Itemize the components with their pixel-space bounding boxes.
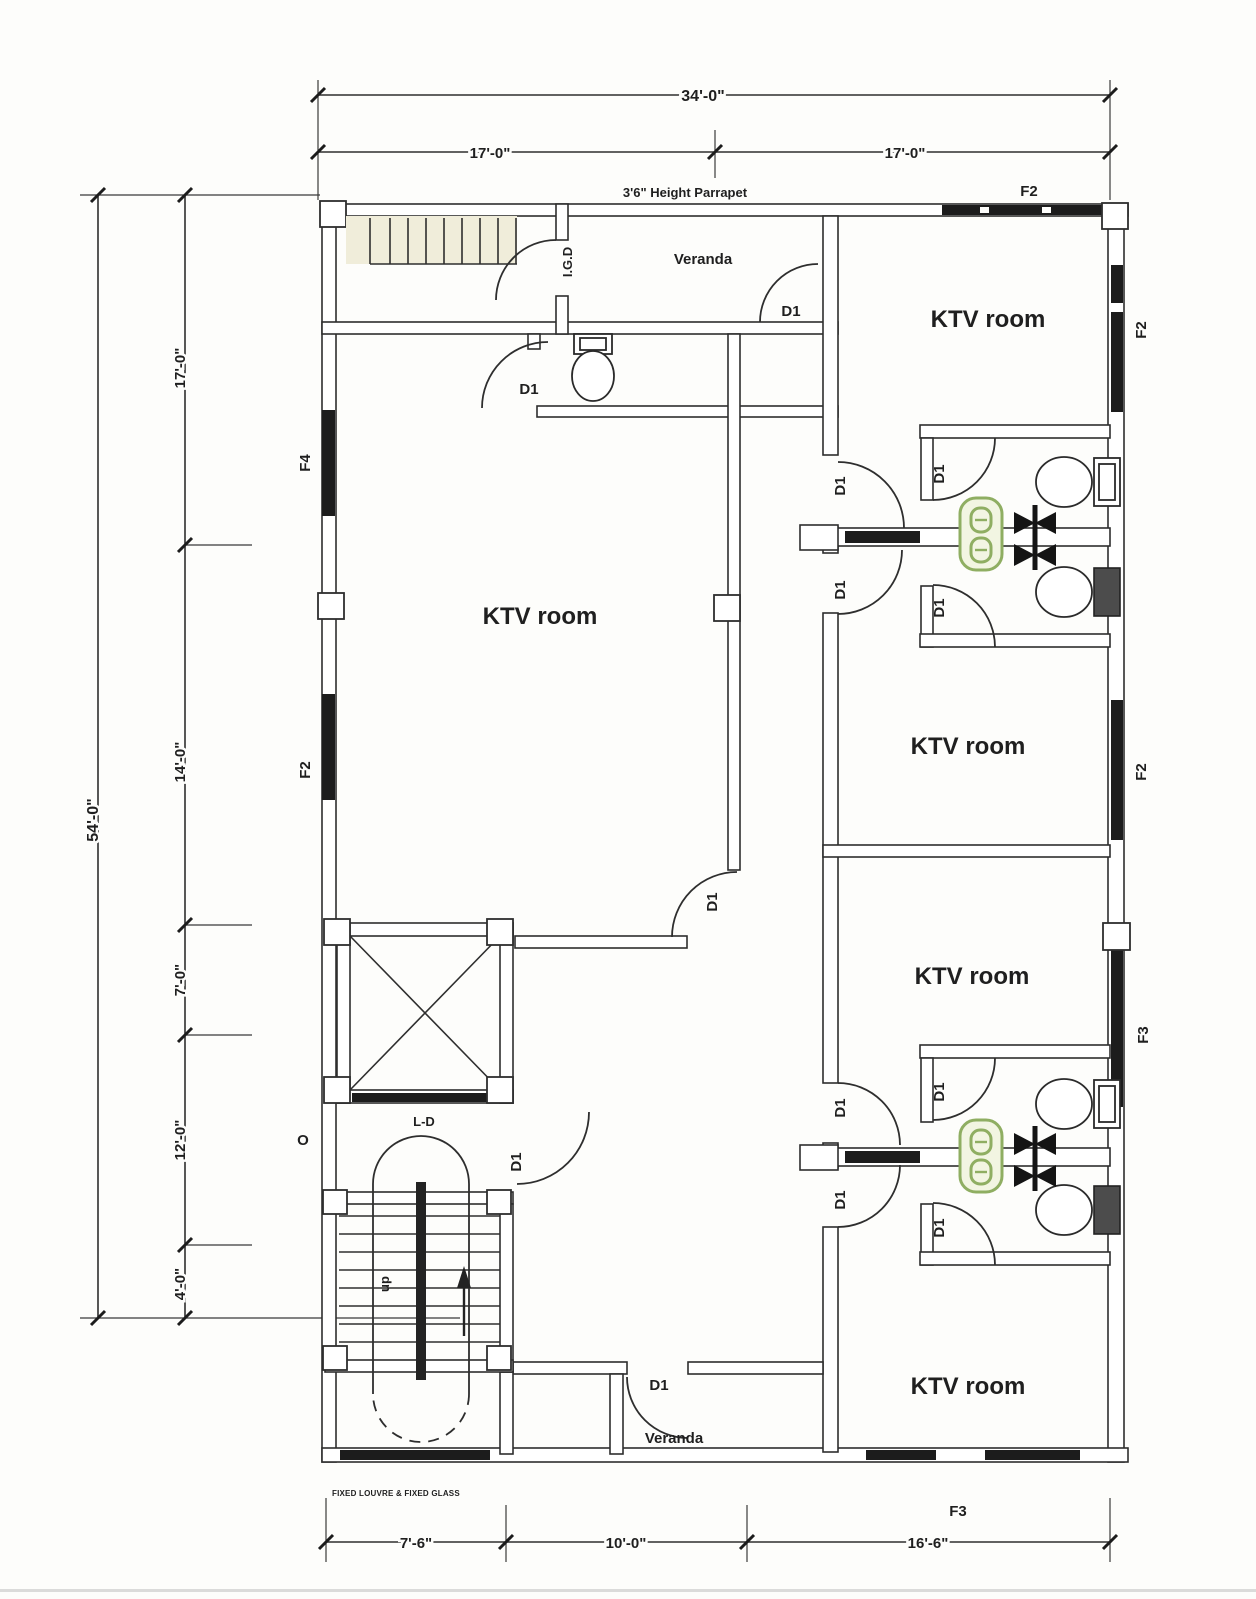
dim-left-seg4: 12'-0" [172, 1120, 189, 1161]
window-label-f3-right: F3 [1135, 1026, 1152, 1044]
window-f2-right-mid [1111, 700, 1123, 840]
inner-walls [322, 204, 1110, 1454]
column [487, 919, 513, 945]
room-label-ktv-3: KTV room [915, 963, 1030, 990]
upper-stair-hatch [346, 216, 517, 264]
outer-walls [318, 201, 1130, 1462]
dim-bottom-seg1: 7'-6" [400, 1535, 432, 1552]
column [318, 593, 344, 619]
column [1102, 203, 1128, 229]
door-label-d1-corridor-1: D1 [832, 476, 849, 495]
column [320, 201, 346, 227]
toilet-icon [1036, 1079, 1120, 1129]
dimension-top: 34'-0" 17'-0" 17'-0" [311, 80, 1117, 200]
door-arc-d1-lift-lobby [517, 1112, 589, 1184]
window-label-f2-right-top: F2 [1133, 321, 1150, 339]
urinal-icon [960, 1120, 1002, 1192]
dim-left-seg5: 4'-0" [172, 1268, 189, 1300]
dim-bottom-seg3: 16'-6" [908, 1535, 949, 1552]
door-label-d1-corridor-3: D1 [832, 1098, 849, 1117]
dim-left-seg3: 7'-0" [172, 964, 189, 996]
column [714, 595, 740, 621]
door-label-d1-hall: D1 [704, 892, 721, 911]
dim-bottom-seg2: 10'-0" [606, 1535, 647, 1552]
column [323, 1346, 347, 1370]
room-label-ktv-4: KTV room [911, 1373, 1026, 1400]
door-label-d1-toilet-nook: D1 [519, 381, 538, 398]
stair-stringer [416, 1182, 426, 1380]
window-f2-left [322, 694, 335, 800]
window-label-f4-left: F4 [297, 454, 314, 472]
column [487, 1346, 511, 1370]
window-label-f2-top: F2 [1020, 183, 1038, 200]
grid-label-o: O [297, 1132, 309, 1149]
column [487, 1190, 511, 1214]
door-arc-d1-toilet-nook [482, 342, 548, 408]
lift-door-label: L-D [413, 1114, 435, 1129]
toilet-icon [1036, 567, 1120, 617]
elevator-shaft [324, 919, 513, 1103]
toilet-icon [1036, 457, 1120, 507]
elevator-door [352, 1093, 500, 1102]
door-label-d1-corridor-4: D1 [832, 1190, 849, 1209]
window-label-f2-right-mid: F2 [1133, 763, 1150, 781]
room-label-veranda-bottom: Veranda [645, 1430, 704, 1447]
window-louvre-bottom [340, 1450, 490, 1460]
column [323, 1190, 347, 1214]
room-label-ktv-main: KTV room [483, 603, 598, 630]
window-f2-right-top [1111, 312, 1123, 412]
room-label-veranda-top: Veranda [674, 251, 733, 268]
door-label-igd: I.G.D [560, 247, 575, 277]
room-label-ktv-2: KTV room [911, 733, 1026, 760]
door-label-d1-veranda-bottom: D1 [649, 1377, 668, 1394]
stairwell: up [323, 1136, 513, 1442]
door-label-d1-stall-2: D1 [931, 598, 948, 617]
dimension-left: 54'-0" 17'-0" 14'-0" 7'-0" 12'-0" 4'-0" [80, 188, 460, 1325]
scan-edge [0, 1589, 1256, 1592]
door-label-d1-stall-3: D1 [931, 1082, 948, 1101]
window-f2-top [942, 205, 1104, 215]
stair-up-label: up [377, 1276, 392, 1292]
dim-top-overall: 34'-0" [681, 88, 724, 105]
door-label-d1-stall-4: D1 [931, 1218, 948, 1237]
window-label-f3-bottom: F3 [949, 1503, 967, 1520]
dim-top-left-half: 17'-0" [470, 145, 511, 162]
dim-top-right-half: 17'-0" [885, 145, 926, 162]
column [324, 1077, 350, 1103]
door-label-d1-lift-lobby: D1 [508, 1152, 525, 1171]
toilet-icon [572, 334, 614, 401]
toilet-icon [1036, 1185, 1120, 1235]
dim-left-seg1: 17'-0" [172, 348, 189, 389]
column [487, 1077, 513, 1103]
room-label-ktv-1: KTV room [931, 306, 1046, 333]
door-label-d1-corridor-2: D1 [832, 580, 849, 599]
dim-left-overall: 54'-0" [85, 798, 102, 841]
floor-plan: 34'-0" 17'-0" 17'-0" 54'-0" 17'-0" 14'-0… [0, 0, 1256, 1599]
door-label-d1-stall-1: D1 [931, 464, 948, 483]
urinal-icon [960, 498, 1002, 570]
door-label-d1-veranda-top: D1 [781, 303, 800, 320]
louvre-note: FIXED LOUVRE & FIXED GLASS [332, 1489, 460, 1498]
window-f4-left [322, 410, 335, 516]
column [324, 919, 350, 945]
column [1103, 923, 1130, 950]
dim-left-seg2: 14'-0" [172, 742, 189, 783]
floor-plan-sheet: 34'-0" 17'-0" 17'-0" 54'-0" 17'-0" 14'-0… [0, 0, 1256, 1599]
parapet-note: 3'6" Height Parrapet [623, 185, 748, 200]
dimension-bottom: 7'-6" 10'-0" 16'-6" F3 [319, 1498, 1117, 1562]
window-label-f2-left: F2 [297, 761, 314, 779]
